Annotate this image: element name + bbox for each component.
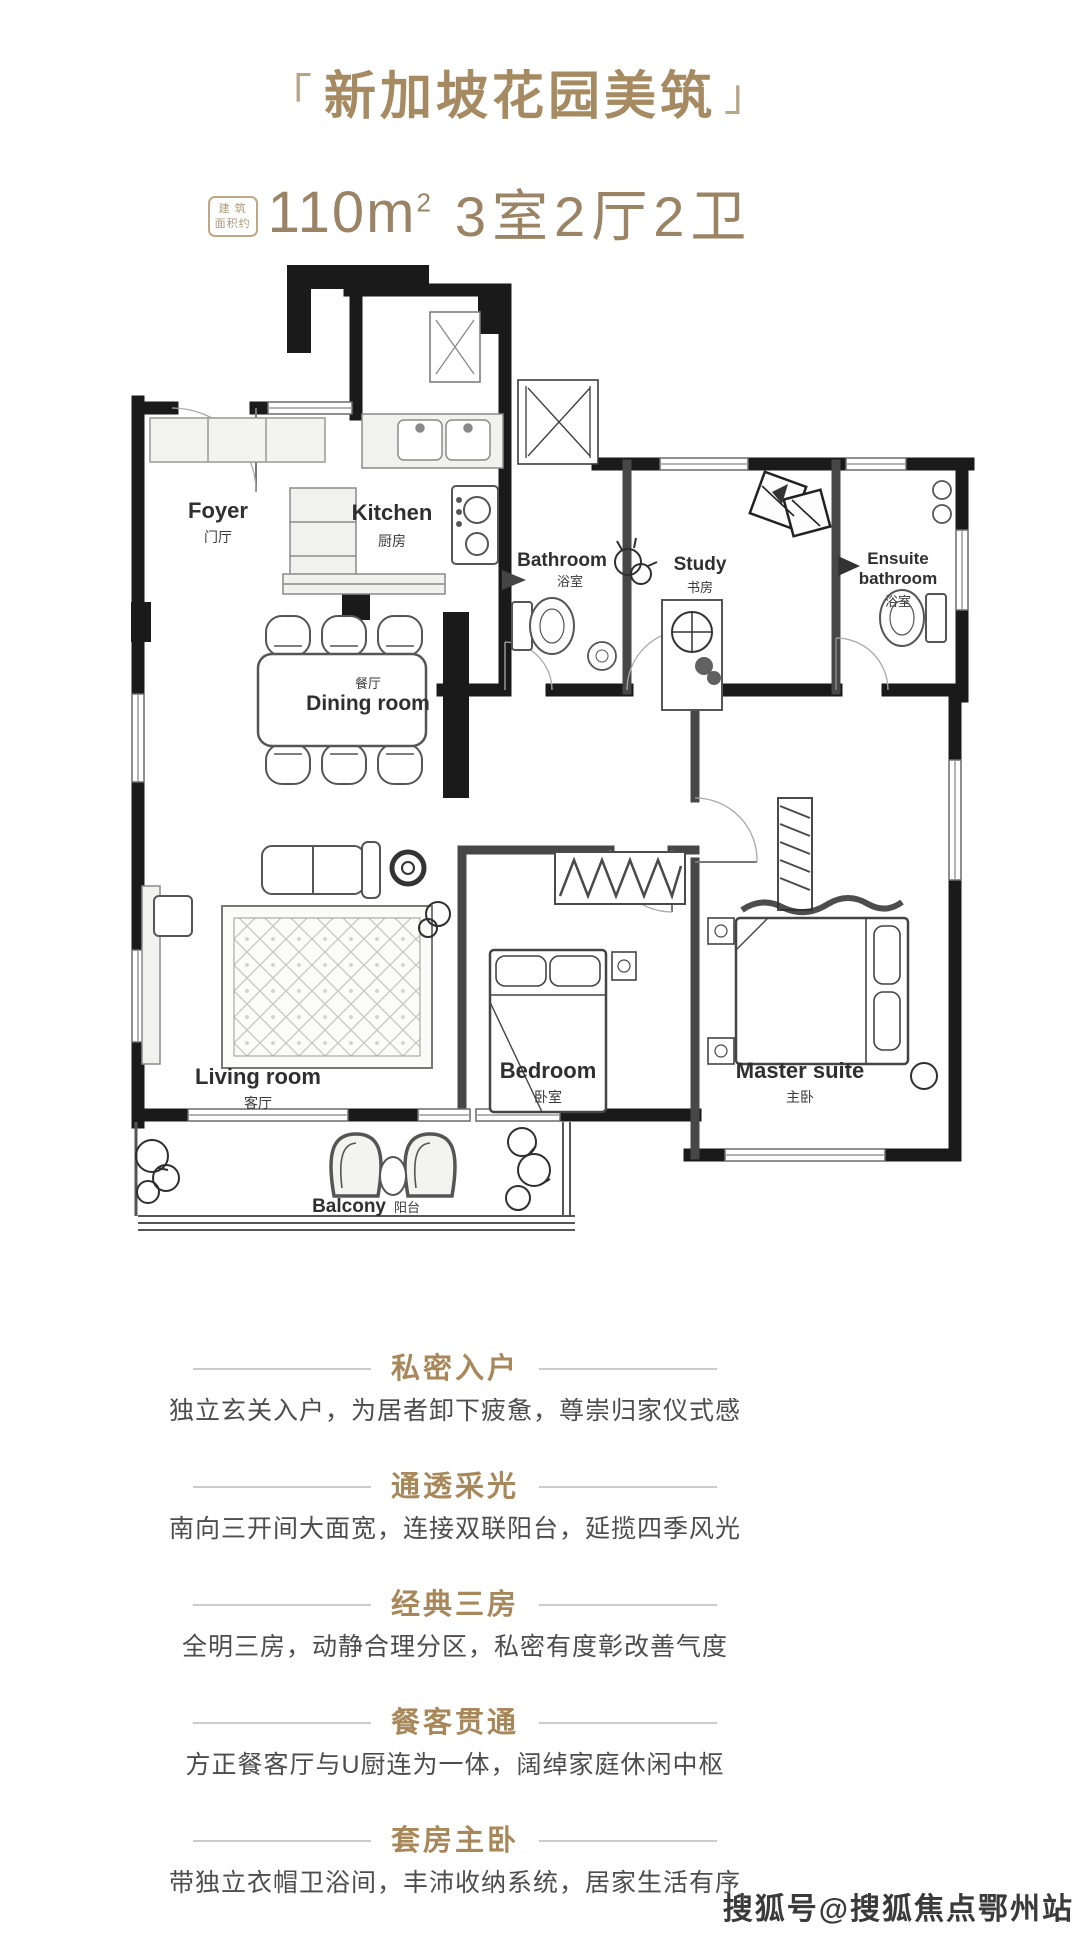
divider-line	[539, 1604, 717, 1606]
study-deco-fold	[750, 472, 830, 536]
room-label-bathroom-en: Bathroom	[517, 550, 607, 571]
study-desk	[662, 600, 722, 710]
room-label-kitchen-en: Kitchen	[352, 500, 433, 525]
stove	[452, 486, 498, 564]
room-label-kitchen-zh: 厨房	[378, 533, 406, 549]
room-label-living-en: Living room	[195, 1064, 321, 1089]
stair-shaft	[430, 312, 480, 382]
feature-title: 通透采光	[391, 1472, 519, 1502]
feature-title: 私密入户	[391, 1354, 519, 1384]
room-label-master-zh: 主卧	[786, 1089, 814, 1105]
feature-description: 方正餐客厅与U厨连为一体，阔绰家庭休闲中枢	[120, 1751, 790, 1779]
feature-description: 南向三开间大面宽，连接双联阳台，延揽四季风光	[120, 1515, 790, 1543]
divider-line	[539, 1486, 717, 1488]
room-label-ensuite-en2: bathroom	[859, 569, 937, 588]
area-badge-line1: 建 筑	[219, 203, 247, 215]
feature-section-private-entry: 私密入户 独立玄关入户，为居者卸下疲惫，尊崇归家仪式感	[120, 1354, 790, 1472]
feature-list: 私密入户 独立玄关入户，为居者卸下疲惫，尊崇归家仪式感 通透采光 南向三开间大面…	[120, 1354, 790, 1944]
foyer-cabinet	[150, 418, 325, 462]
feature-section-lighting: 通透采光 南向三开间大面宽，连接双联阳台，延揽四季风光	[120, 1472, 790, 1590]
master-wardrobe	[778, 798, 812, 910]
divider-line	[193, 1486, 371, 1488]
room-label-dining-zh: 餐厅	[355, 676, 381, 691]
room-label-master-en: Master suite	[736, 1058, 864, 1083]
room-label-study-zh: 书房	[687, 580, 713, 595]
room-label-study-en: Study	[674, 554, 727, 575]
room-label-bedroom-zh: 卧室	[534, 1089, 562, 1105]
room-label-ensuite-en1: Ensuite	[867, 549, 928, 568]
divider-line	[193, 1722, 371, 1724]
bed-bedroom	[490, 950, 636, 1112]
room-label-balcony-zh: 阳台	[394, 1200, 420, 1215]
bracket-right-icon: 」	[716, 71, 780, 120]
room-label-foyer-zh: 门厅	[204, 529, 232, 545]
feature-title: 套房主卧	[391, 1826, 519, 1856]
area-sup: 2	[416, 188, 432, 218]
feature-title: 餐客贯通	[391, 1708, 519, 1738]
room-label-dining-en: Dining room	[306, 692, 430, 715]
room-label-bedroom-en: Bedroom	[500, 1058, 597, 1083]
study-plant	[615, 538, 657, 584]
area-badge: 建 筑面积约	[208, 196, 258, 238]
room-label-living-zh: 客厅	[244, 1095, 272, 1111]
shower-arrow-icon	[502, 570, 526, 590]
page-title-text: 新加坡花园美筑	[324, 68, 716, 126]
toilet-bathroom	[512, 598, 574, 654]
shaft-x	[518, 380, 598, 464]
bracket-left-icon: 「	[260, 71, 324, 120]
ensuite-sink	[933, 481, 951, 523]
floor-plan-svg: Foyer 门厅 Kitchen 厨房 Bathroom 浴室 Study 书房…	[0, 250, 1080, 1250]
bathroom-sink	[588, 642, 616, 670]
living-rug	[222, 906, 432, 1068]
feature-section-three-rooms: 经典三房 全明三房，动静合理分区，私密有度彰改善气度	[120, 1590, 790, 1708]
divider-line	[193, 1840, 371, 1842]
feature-title: 经典三房	[391, 1590, 519, 1620]
divider-line	[539, 1368, 717, 1370]
room-label-bathroom-zh: 浴室	[557, 574, 583, 589]
page-title: 「新加坡花园美筑」	[0, 54, 1060, 129]
divider-line	[539, 1722, 717, 1724]
balcony-chairs	[331, 1134, 455, 1196]
area-value: 110m2	[268, 179, 433, 246]
feature-section-master-suite: 套房主卧 带独立衣帽卫浴间，丰沛收纳系统，居家生活有序	[120, 1826, 790, 1944]
room-label-ensuite-zh: 浴室	[885, 594, 911, 609]
feature-description: 独立玄关入户，为居者卸下疲惫，尊崇归家仪式感	[120, 1397, 790, 1425]
feature-description: 带独立衣帽卫浴间，丰沛收纳系统，居家生活有序	[120, 1869, 790, 1897]
floor-plan: Foyer 门厅 Kitchen 厨房 Bathroom 浴室 Study 书房…	[0, 250, 1080, 1250]
layout-value: 3室2厅2卫	[455, 172, 752, 253]
divider-line	[193, 1604, 371, 1606]
ensuite-arrow-icon	[838, 556, 860, 576]
watermark: 搜狐号@搜狐焦点鄂州站	[723, 1884, 1074, 1928]
area-badge-line2: 面积约	[215, 218, 251, 230]
divider-line	[193, 1368, 371, 1370]
divider-line	[539, 1840, 717, 1842]
spec-row: 建 筑面积约 110m2 3室2厅2卫	[0, 172, 1020, 253]
room-label-foyer-en: Foyer	[188, 498, 248, 523]
feature-section-dining-living: 餐客贯通 方正餐客厅与U厨连为一体，阔绰家庭休闲中枢	[120, 1708, 790, 1826]
room-label-balcony-en: Balcony	[312, 1196, 386, 1217]
bedroom-wardrobe	[555, 852, 685, 904]
side-table	[392, 852, 424, 884]
feature-description: 全明三房，动静合理分区，私密有度彰改善气度	[120, 1633, 790, 1661]
